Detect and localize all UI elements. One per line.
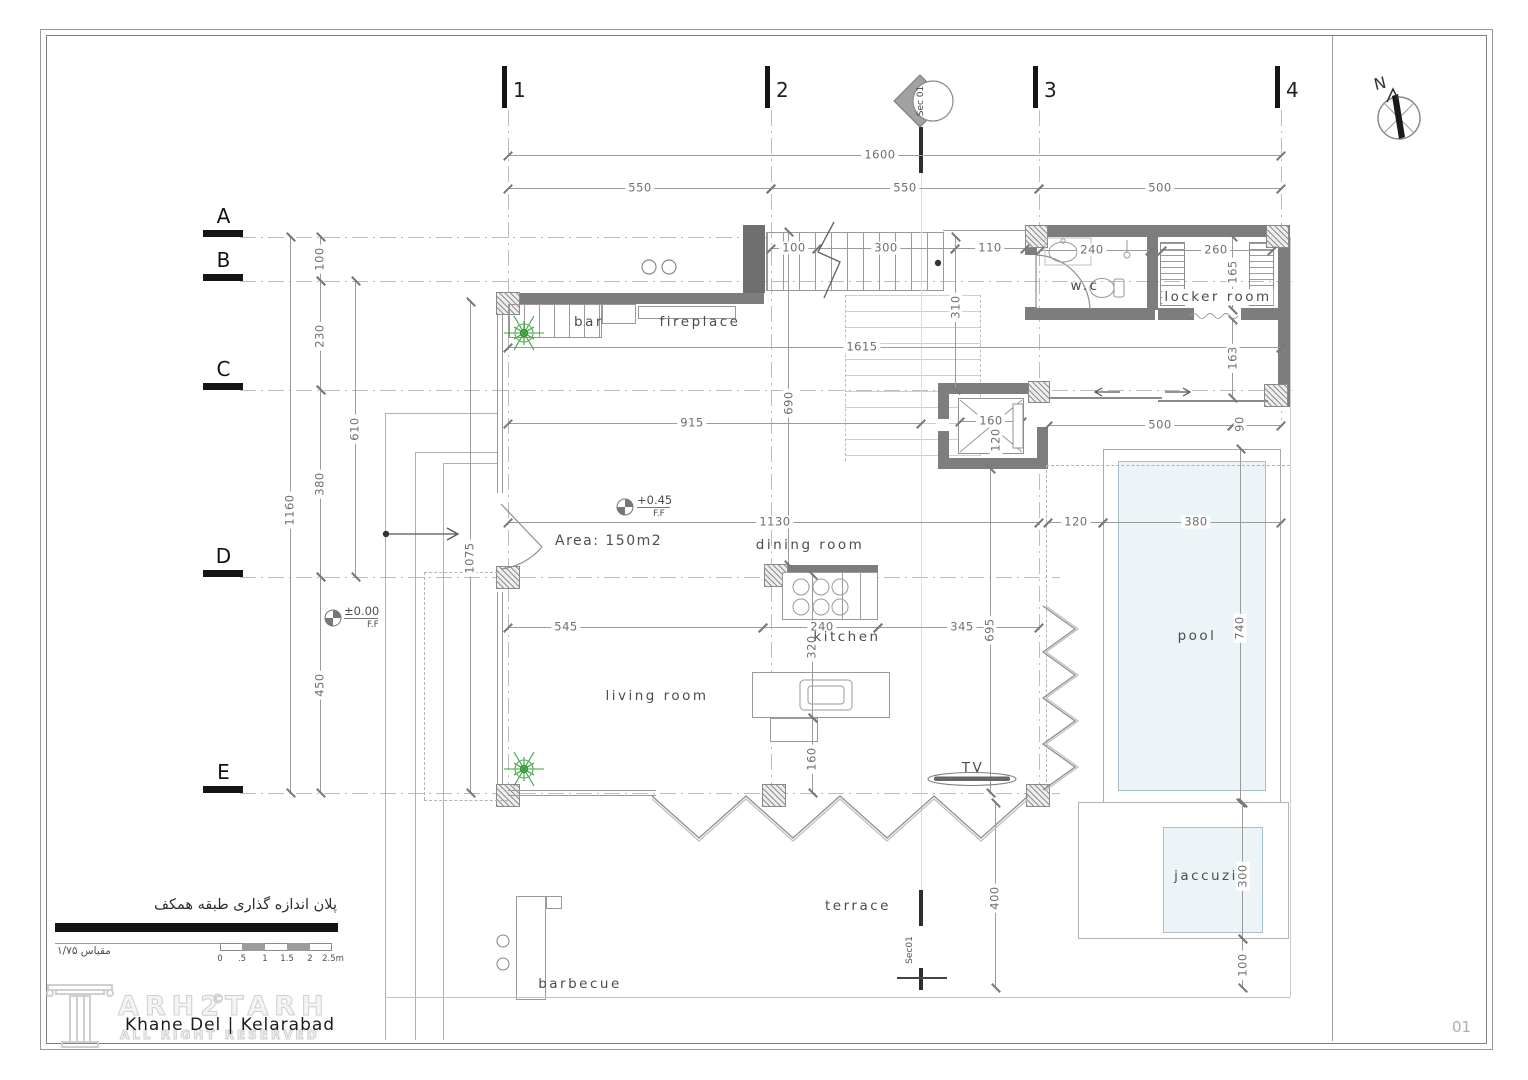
scale-tick: 1.5 — [280, 954, 294, 964]
wall-kitchen-counter-top — [782, 565, 878, 572]
section-line-top — [919, 127, 923, 173]
wall-right — [1278, 237, 1290, 407]
dim-label: 100 — [779, 242, 808, 255]
dim-label: 915 — [677, 417, 706, 430]
room-label-pool: pool — [1178, 628, 1217, 644]
grid-tick-D — [203, 570, 243, 577]
dim-label: 695 — [984, 615, 997, 644]
scale-tick: 0 — [217, 954, 222, 964]
scale-bar — [220, 943, 332, 951]
scale-tick: 2 — [307, 954, 312, 964]
dim-label: 300 — [871, 242, 900, 255]
dim-label: 100 — [314, 244, 327, 273]
walkway-line — [385, 413, 386, 1040]
grid-tick-4 — [1275, 66, 1280, 108]
title-underline-bar — [55, 923, 338, 932]
dim-label: 120 — [1061, 516, 1090, 529]
level-line — [637, 507, 670, 508]
section-line-bottom — [919, 968, 923, 990]
sliding-door-panel — [1050, 397, 1162, 399]
room-label-locker: locker room — [1162, 289, 1273, 305]
scale-tick: 2.5m — [322, 954, 344, 964]
overhang-dashed — [424, 800, 508, 801]
dim-label: 260 — [1201, 244, 1230, 257]
level-ff: F.F — [653, 509, 665, 519]
copyright-icon: © — [212, 992, 224, 1006]
kitchen-counter — [782, 572, 878, 620]
room-label-kitchen: kitchen — [813, 629, 880, 645]
grid-tick-B — [203, 274, 243, 281]
dim-label: 300 — [1237, 861, 1250, 890]
dim-label: 230 — [314, 321, 327, 350]
room-label-jaccuzi: jaccuzi — [1174, 868, 1238, 884]
plan-title-farsi: پلان اندازه گذاری طبقه همکف — [135, 897, 337, 913]
wall-wc-top — [1025, 225, 1290, 237]
section-line — [921, 130, 922, 890]
floor-plan-sheet: 1 2 3 4 A B C D E — [0, 0, 1528, 1080]
dim-label: 610 — [349, 414, 362, 443]
kitchen-island-step — [770, 718, 818, 742]
extension-line — [1290, 237, 1291, 997]
scale-bar-fill — [242, 943, 265, 951]
dim-label: 120 — [990, 425, 1003, 454]
room-label-wc: w.c — [1070, 278, 1099, 294]
room-label-dining: dining room — [756, 537, 864, 553]
dimension-line — [1048, 425, 1232, 426]
dim-label: 345 — [947, 621, 976, 634]
dim-label: 160 — [806, 744, 819, 773]
grid-row-label: D — [216, 544, 232, 568]
dim-label: 380 — [314, 469, 327, 498]
terrace-edge — [385, 997, 1290, 998]
window-left — [497, 315, 503, 493]
area-label: Area: 150m2 — [555, 533, 662, 549]
grid-row-label: B — [217, 248, 232, 272]
dim-label: 165 — [1227, 257, 1240, 286]
dim-label: 1075 — [464, 539, 477, 576]
grid-tick-E — [203, 786, 243, 793]
grid-tick-1 — [502, 66, 507, 108]
section-line-bottom — [919, 890, 923, 926]
dim-label: 400 — [989, 883, 1002, 912]
window-left — [497, 592, 503, 784]
level-ff: F.F — [367, 620, 379, 630]
room-label-living: living room — [605, 688, 708, 704]
dim-label: 450 — [314, 670, 327, 699]
grid-line-D — [240, 577, 1060, 578]
level-value: +0.45 — [637, 493, 672, 507]
barbecue-step — [546, 896, 562, 909]
walkway-line — [385, 413, 497, 414]
sliding-door-panel — [1158, 400, 1268, 402]
overhang-dashed — [424, 572, 498, 573]
grid-column-label: 4 — [1286, 78, 1299, 102]
walkway-line — [415, 452, 416, 1040]
kitchen-counter-division — [860, 572, 861, 620]
dim-label: 110 — [975, 242, 1004, 255]
dimension-line — [508, 347, 1281, 348]
room-label-terrace: terrace — [825, 898, 891, 914]
grid-line-C — [240, 390, 1292, 391]
wall-locker-bottom — [1158, 308, 1194, 320]
dim-label: 240 — [1077, 244, 1106, 257]
page-number: 01 — [1452, 1018, 1471, 1036]
column — [1264, 384, 1288, 407]
walkway-line — [415, 452, 497, 453]
dim-label: 1615 — [843, 341, 880, 354]
scale-tick: 1 — [262, 954, 267, 964]
section-cross — [897, 977, 947, 979]
scale-tick: .5 — [238, 954, 246, 964]
dim-label: 545 — [551, 621, 580, 634]
dim-label: 1600 — [861, 149, 898, 162]
room-label-fireplace: fireplace — [660, 314, 741, 330]
level-value: ±0.00 — [344, 604, 379, 618]
dim-label: 100 — [1237, 950, 1250, 979]
kitchen-counter-division — [842, 572, 843, 620]
dim-label: 740 — [1234, 613, 1247, 642]
walkway-line — [443, 463, 444, 1040]
wall-pillar-grid2 — [743, 225, 765, 293]
column — [1266, 225, 1289, 248]
dim-label: 380 — [1181, 516, 1210, 529]
bar-return — [602, 304, 636, 324]
wall-wc-left — [1025, 307, 1037, 320]
room-label-tv: TV — [962, 760, 984, 776]
grid-line-1 — [508, 110, 509, 810]
grid-column-label: 3 — [1044, 78, 1057, 102]
wall-wc-bottom — [1037, 308, 1155, 320]
grid-column-label: 1 — [513, 78, 526, 102]
column — [496, 566, 520, 589]
overhang-dashed — [1046, 465, 1047, 792]
dim-label: 163 — [1227, 343, 1240, 372]
wall-bar-top — [508, 293, 764, 304]
dim-label: 1130 — [756, 516, 793, 529]
scale-label-farsi: مقیاس ۱/۷۵ — [57, 945, 111, 957]
grid-row-label: A — [217, 204, 232, 228]
elevator-opening — [936, 419, 949, 431]
grid-column-label: 2 — [776, 78, 789, 102]
overhang-dashed — [424, 572, 425, 800]
dimension-line — [508, 423, 921, 424]
sheet-divider-line — [1332, 36, 1333, 1041]
grid-row-label: E — [217, 760, 231, 784]
grid-row-label: C — [217, 357, 232, 381]
level-line — [344, 618, 378, 619]
grid-tick-3 — [1033, 66, 1038, 108]
room-label-barbecue: barbecue — [538, 976, 622, 992]
dim-label: 500 — [1145, 182, 1174, 195]
dim-label: 1160 — [284, 491, 297, 528]
scale-bar-line — [55, 943, 220, 944]
dim-label: 550 — [625, 182, 654, 195]
scale-bar-fill — [287, 943, 310, 951]
section-label-bottom: Sec01 — [905, 936, 915, 964]
kitchen-island — [752, 672, 890, 718]
dim-label: 550 — [890, 182, 919, 195]
column — [762, 784, 786, 807]
grid-tick-A — [203, 230, 243, 237]
section-label-top: Sec 01 — [916, 86, 926, 117]
dimension-line — [508, 627, 763, 628]
dim-label: 690 — [783, 388, 796, 417]
corridor-edge — [943, 230, 1025, 231]
project-title: Khane Del | Kelarabad — [125, 1015, 335, 1035]
room-label-bar: bar — [574, 314, 604, 330]
dim-label: 500 — [1145, 419, 1174, 432]
column — [1028, 381, 1050, 403]
dim-label: 90 — [1234, 413, 1247, 435]
grid-tick-2 — [765, 66, 770, 108]
window-bottom — [508, 790, 656, 796]
dim-label: 310 — [950, 292, 963, 321]
grid-tick-C — [203, 383, 243, 390]
overhang-dashed — [1046, 465, 1290, 466]
